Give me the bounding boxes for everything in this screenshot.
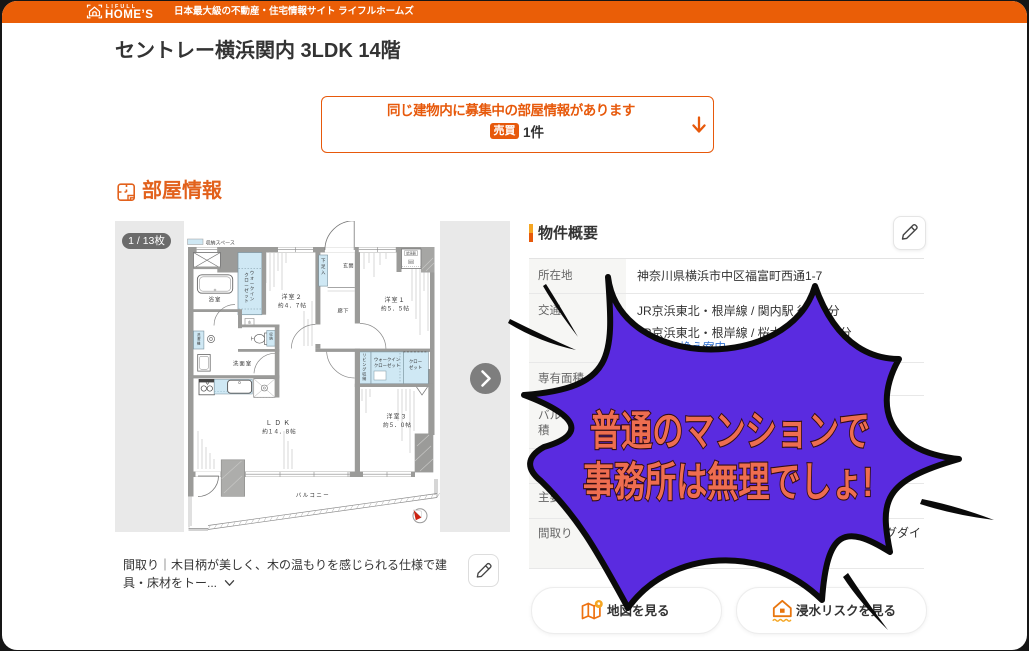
svg-text:ウォークイン: ウォークイン	[374, 356, 401, 363]
svg-text:ゼ: ゼ	[244, 287, 249, 293]
svg-text:収納スペース: 収納スペース	[206, 240, 235, 247]
svg-text:バルコニー: バルコニー	[296, 492, 330, 499]
svg-text:ＬＤＫ: ＬＤＫ	[266, 420, 293, 427]
svg-text:納: 納	[269, 336, 273, 341]
svg-text:事務所は無理でしょ!: 事務所は無理でしょ!	[583, 459, 873, 505]
svg-text:クローゼット: クローゼット	[374, 362, 400, 369]
svg-text:普通のマンションで: 普通のマンションで	[590, 408, 870, 454]
svg-text:約１４．８帖: 約１４．８帖	[262, 428, 296, 436]
svg-text:ト: ト	[244, 299, 249, 304]
svg-text:約４．７帖: 約４．７帖	[278, 302, 306, 310]
svg-text:約５．５帖: 約５．５帖	[381, 305, 409, 313]
svg-text:入: 入	[321, 270, 326, 275]
svg-text:納: 納	[362, 375, 366, 381]
svg-text:水: 水	[248, 320, 252, 325]
svg-text:廊下: 廊下	[338, 307, 349, 315]
svg-text:機: 機	[197, 340, 201, 345]
svg-text:約５．０帖: 約５．０帖	[383, 421, 411, 429]
svg-text:洋室３: 洋室３	[386, 413, 407, 421]
svg-text:MB: MB	[409, 260, 413, 264]
svg-text:洋室１: 洋室１	[384, 296, 405, 304]
svg-text:給湯器: 給湯器	[406, 251, 416, 256]
svg-text:洗面室: 洗面室	[233, 360, 252, 368]
svg-text:玄関: 玄関	[343, 263, 354, 270]
svg-text:ゼット: ゼット	[409, 364, 422, 370]
svg-text:ウ: ウ	[250, 270, 255, 276]
svg-text:ン: ン	[250, 297, 255, 302]
svg-text:洋室２: 洋室２	[281, 293, 302, 301]
svg-text:浴室: 浴室	[209, 296, 222, 304]
